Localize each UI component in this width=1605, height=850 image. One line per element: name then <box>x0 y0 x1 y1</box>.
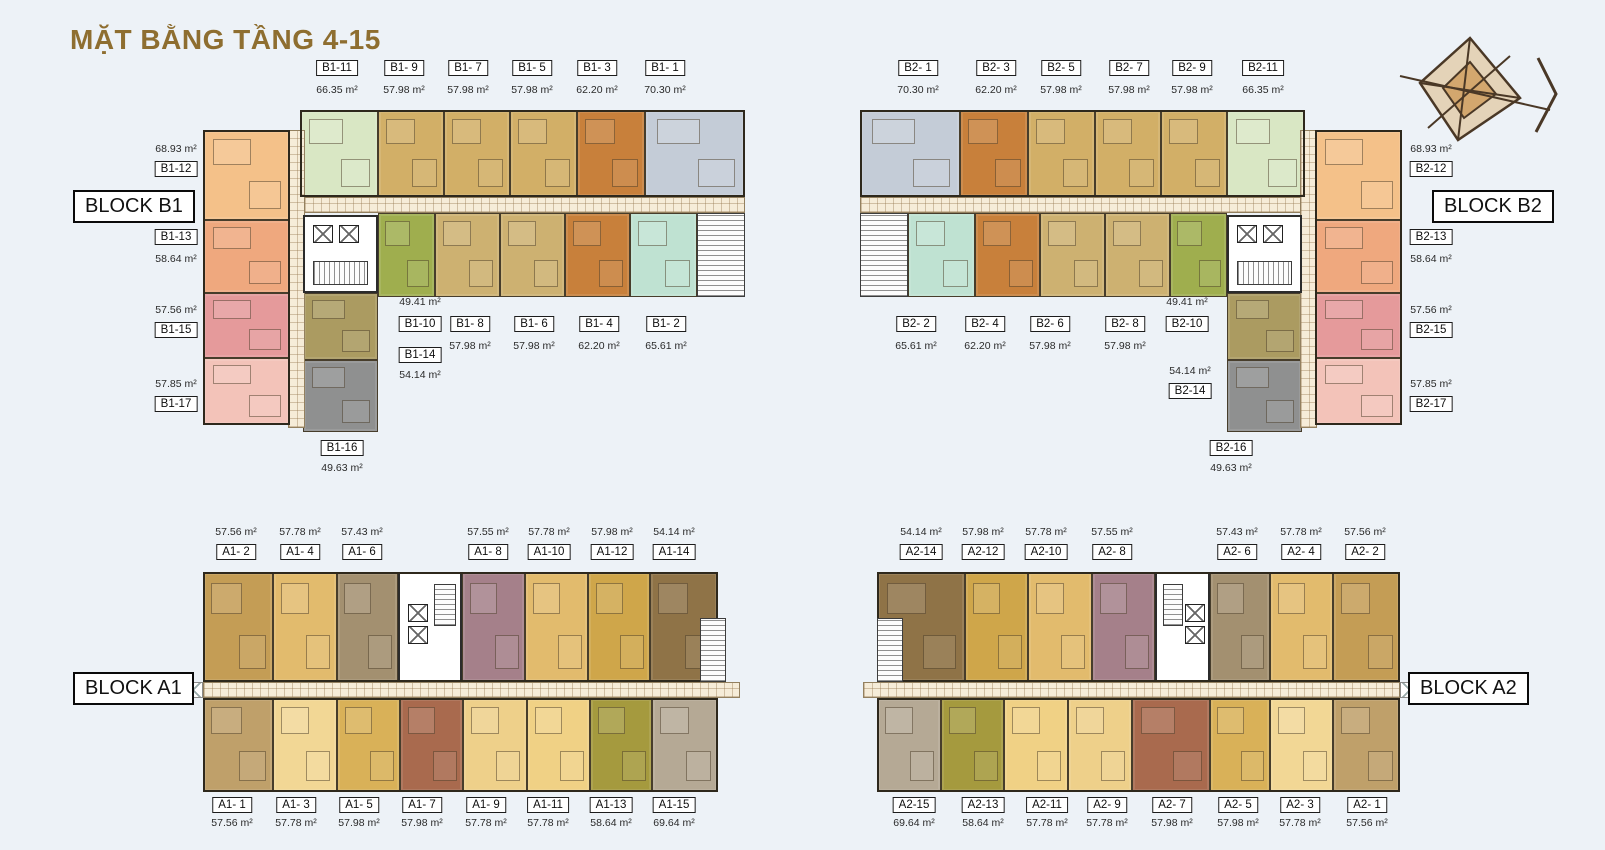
unit-plan-A2-10[interactable] <box>1028 572 1092 682</box>
unit-area-B1-9: 57.98 m² <box>383 84 424 96</box>
unit-label-B2-14[interactable]: B2-14 <box>1169 383 1212 399</box>
unit-area-A1-8: 57.55 m² <box>467 526 508 538</box>
unit-plan-A2-4[interactable] <box>1270 572 1333 682</box>
unit-label-A2-7[interactable]: A2- 7 <box>1152 797 1192 813</box>
elevator-core-a2 <box>1155 572 1210 682</box>
elevator-icon <box>1263 225 1283 243</box>
unit-label-A2-8[interactable]: A2- 8 <box>1092 544 1132 560</box>
elevator-icon <box>1237 225 1257 243</box>
stairwell-a1-east <box>700 618 726 682</box>
unit-plan-B1-17[interactable] <box>203 358 290 425</box>
unit-label-A1-13[interactable]: A1-13 <box>590 797 633 813</box>
unit-label-B1-15[interactable]: B1-15 <box>155 322 198 338</box>
stairs-icon <box>434 584 456 626</box>
unit-area-B1-15: 57.56 m² <box>155 304 196 316</box>
unit-area-A1-11: 57.78 m² <box>527 817 568 829</box>
unit-label-A2-1[interactable]: A2- 1 <box>1347 797 1387 813</box>
unit-area-A2-9: 57.78 m² <box>1086 817 1127 829</box>
unit-area-B1-10: 49.41 m² <box>399 296 440 308</box>
unit-area-B2-1: 70.30 m² <box>897 84 938 96</box>
unit-plan-B2-13[interactable] <box>1315 220 1402 293</box>
unit-plan-A2-12[interactable] <box>965 572 1028 682</box>
unit-area-B2-16: 49.63 m² <box>1210 462 1251 474</box>
unit-label-B1-1[interactable]: B1- 1 <box>645 60 685 76</box>
unit-area-B1-2: 65.61 m² <box>645 340 686 352</box>
unit-plan-B2-12[interactable] <box>1315 130 1402 220</box>
floor-plan-canvas: MẶT BẰNG TẦNG 4-15 BLOCK B1 BLOCK B2 BLO… <box>0 0 1605 850</box>
unit-plan-B1-1[interactable] <box>645 110 745 197</box>
unit-label-A2-2[interactable]: A2- 2 <box>1345 544 1385 560</box>
unit-area-B1-12: 68.93 m² <box>155 143 196 155</box>
unit-area-B2-8: 57.98 m² <box>1104 340 1145 352</box>
unit-label-A1-1[interactable]: A1- 1 <box>212 797 252 813</box>
unit-label-A1-7[interactable]: A1- 7 <box>402 797 442 813</box>
unit-area-B2-15: 57.56 m² <box>1410 304 1451 316</box>
unit-label-B2-10[interactable]: B2-10 <box>1166 316 1209 332</box>
unit-plan-B1-16[interactable] <box>303 360 378 432</box>
unit-plan-A2-13[interactable] <box>941 698 1004 792</box>
unit-plan-B1-2[interactable] <box>630 213 697 297</box>
unit-plan-A2-1[interactable] <box>1333 698 1400 792</box>
unit-area-B2-17: 57.85 m² <box>1410 378 1451 390</box>
unit-label-B2-1[interactable]: B2- 1 <box>898 60 938 76</box>
unit-label-A1-3[interactable]: A1- 3 <box>276 797 316 813</box>
block-label-a2: BLOCK A2 <box>1408 672 1529 705</box>
unit-plan-B1-6[interactable] <box>500 213 565 297</box>
unit-area-B1-13: 58.64 m² <box>155 253 196 265</box>
unit-label-B2-7[interactable]: B2- 7 <box>1109 60 1149 76</box>
unit-plan-B1-10[interactable] <box>378 213 435 297</box>
unit-label-A1-6[interactable]: A1- 6 <box>342 544 382 560</box>
unit-label-B2-6[interactable]: B2- 6 <box>1030 316 1070 332</box>
unit-plan-B1-9[interactable] <box>378 110 444 197</box>
unit-label-B2-15[interactable]: B2-15 <box>1410 322 1453 338</box>
unit-label-A2-4[interactable]: A2- 4 <box>1281 544 1321 560</box>
unit-area-B2-11: 66.35 m² <box>1242 84 1283 96</box>
unit-area-A2-5: 57.98 m² <box>1217 817 1258 829</box>
unit-area-B1-11: 66.35 m² <box>316 84 357 96</box>
unit-plan-B2-3[interactable] <box>960 110 1028 197</box>
unit-area-B2-12: 68.93 m² <box>1410 143 1451 155</box>
corridor-b2-horizontal <box>860 197 1317 213</box>
unit-label-B1-6[interactable]: B1- 6 <box>514 316 554 332</box>
unit-area-A2-6: 57.43 m² <box>1216 526 1257 538</box>
unit-plan-B2-11[interactable] <box>1227 110 1305 197</box>
unit-plan-B1-15[interactable] <box>203 293 290 358</box>
unit-area-A2-13: 58.64 m² <box>962 817 1003 829</box>
unit-plan-A1-6[interactable] <box>337 572 398 682</box>
unit-label-A2-10[interactable]: A2-10 <box>1025 544 1068 560</box>
unit-plan-B2-2[interactable] <box>908 213 975 297</box>
unit-area-A2-1: 57.56 m² <box>1346 817 1387 829</box>
unit-plan-B2-5[interactable] <box>1028 110 1095 197</box>
unit-area-B2-4: 62.20 m² <box>964 340 1005 352</box>
elevator-core-b1 <box>303 215 378 293</box>
unit-label-A2-11[interactable]: A2-11 <box>1026 797 1068 813</box>
unit-area-A1-4: 57.78 m² <box>279 526 320 538</box>
stairwell-b2-west <box>860 213 908 297</box>
elevator-icon <box>1185 604 1205 622</box>
stairwell-b1-east <box>697 213 745 297</box>
unit-label-B1-7[interactable]: B1- 7 <box>448 60 488 76</box>
unit-label-B1-5[interactable]: B1- 5 <box>512 60 552 76</box>
unit-label-B1-17[interactable]: B1-17 <box>155 396 198 412</box>
unit-label-B1-4[interactable]: B1- 4 <box>579 316 619 332</box>
unit-plan-A1-10[interactable] <box>525 572 588 682</box>
corridor-b2-vertical <box>1300 130 1317 428</box>
unit-area-B1-8: 57.98 m² <box>449 340 490 352</box>
unit-plan-B1-11[interactable] <box>300 110 378 197</box>
unit-plan-A1-13[interactable] <box>590 698 652 792</box>
unit-plan-A1-2[interactable] <box>203 572 273 682</box>
unit-plan-B2-16[interactable] <box>1227 360 1302 432</box>
unit-label-B1-8[interactable]: B1- 8 <box>450 316 490 332</box>
unit-plan-A1-9[interactable] <box>463 698 527 792</box>
unit-plan-A1-5[interactable] <box>337 698 400 792</box>
unit-area-A2-11: 57.78 m² <box>1026 817 1067 829</box>
unit-area-B2-9: 57.98 m² <box>1171 84 1212 96</box>
unit-plan-A1-15[interactable] <box>652 698 718 792</box>
unit-label-A1-11[interactable]: A1-11 <box>527 797 569 813</box>
elevator-icon <box>408 626 428 644</box>
unit-plan-B1-12[interactable] <box>203 130 290 220</box>
unit-label-A1-10[interactable]: A1-10 <box>528 544 571 560</box>
unit-label-A1-14[interactable]: A1-14 <box>653 544 696 560</box>
unit-label-B1-13[interactable]: B1-13 <box>155 229 198 245</box>
unit-area-A1-10: 57.78 m² <box>528 526 569 538</box>
unit-label-B2-2[interactable]: B2- 2 <box>896 316 936 332</box>
elevator-icon <box>339 225 359 243</box>
unit-label-B2-11[interactable]: B2-11 <box>1242 60 1284 76</box>
unit-area-A2-7: 57.98 m² <box>1151 817 1192 829</box>
unit-label-B1-10[interactable]: B1-10 <box>399 316 442 332</box>
unit-area-B1-16: 49.63 m² <box>321 462 362 474</box>
unit-label-A2-3[interactable]: A2- 3 <box>1280 797 1320 813</box>
unit-plan-B2-7[interactable] <box>1095 110 1161 197</box>
unit-area-A2-10: 57.78 m² <box>1025 526 1066 538</box>
unit-label-A1-4[interactable]: A1- 4 <box>280 544 320 560</box>
stairs-icon <box>313 261 368 285</box>
unit-plan-B1-5[interactable] <box>510 110 577 197</box>
unit-area-A1-5: 57.98 m² <box>338 817 379 829</box>
unit-plan-B1-3[interactable] <box>577 110 645 197</box>
unit-plan-A2-5[interactable] <box>1210 698 1270 792</box>
unit-plan-B2-9[interactable] <box>1161 110 1227 197</box>
unit-label-B2-16[interactable]: B2-16 <box>1210 440 1253 456</box>
unit-plan-A2-8[interactable] <box>1092 572 1155 682</box>
unit-label-A1-2[interactable]: A1- 2 <box>216 544 256 560</box>
unit-plan-B2-10[interactable] <box>1170 213 1227 297</box>
unit-label-B2-5[interactable]: B2- 5 <box>1041 60 1081 76</box>
unit-plan-A2-7[interactable] <box>1132 698 1210 792</box>
unit-area-A1-15: 69.64 m² <box>653 817 694 829</box>
block-label-b2: BLOCK B2 <box>1432 190 1554 223</box>
unit-label-A2-14[interactable]: A2-14 <box>900 544 943 560</box>
unit-label-B1-16[interactable]: B1-16 <box>321 440 364 456</box>
unit-area-B1-14: 54.14 m² <box>399 369 440 381</box>
unit-plan-A2-11[interactable] <box>1004 698 1068 792</box>
unit-area-B1-17: 57.85 m² <box>155 378 196 390</box>
unit-label-A2-9[interactable]: A2- 9 <box>1087 797 1127 813</box>
unit-plan-A2-9[interactable] <box>1068 698 1132 792</box>
unit-plan-B1-14[interactable] <box>303 293 378 360</box>
unit-plan-A1-12[interactable] <box>588 572 650 682</box>
unit-area-A1-9: 57.78 m² <box>465 817 506 829</box>
corridor-a2-horizontal <box>863 682 1400 698</box>
unit-label-B1-12[interactable]: B1-12 <box>155 161 198 177</box>
unit-area-B2-3: 62.20 m² <box>975 84 1016 96</box>
unit-area-B1-7: 57.98 m² <box>447 84 488 96</box>
unit-label-B2-3[interactable]: B2- 3 <box>976 60 1016 76</box>
unit-plan-B2-4[interactable] <box>975 213 1040 297</box>
unit-area-A1-7: 57.98 m² <box>401 817 442 829</box>
unit-area-A1-6: 57.43 m² <box>341 526 382 538</box>
unit-area-A1-12: 57.98 m² <box>591 526 632 538</box>
unit-label-A2-15[interactable]: A2-15 <box>893 797 936 813</box>
unit-area-A1-13: 58.64 m² <box>590 817 631 829</box>
unit-label-B2-8[interactable]: B2- 8 <box>1105 316 1145 332</box>
unit-plan-B1-7[interactable] <box>444 110 510 197</box>
unit-label-B1-2[interactable]: B1- 2 <box>646 316 686 332</box>
unit-area-A2-15: 69.64 m² <box>893 817 934 829</box>
unit-label-B1-14[interactable]: B1-14 <box>399 347 442 363</box>
unit-area-A1-1: 57.56 m² <box>211 817 252 829</box>
elevator-icon <box>408 604 428 622</box>
unit-plan-B2-17[interactable] <box>1315 358 1402 425</box>
unit-area-B2-10: 49.41 m² <box>1166 296 1207 308</box>
unit-label-B1-9[interactable]: B1- 9 <box>384 60 424 76</box>
unit-plan-A1-3[interactable] <box>273 698 337 792</box>
unit-plan-B2-14[interactable] <box>1227 293 1302 360</box>
page-title: MẶT BẰNG TẦNG 4-15 <box>70 24 381 56</box>
unit-label-A1-8[interactable]: A1- 8 <box>468 544 508 560</box>
stairwell-a2-west <box>877 618 903 682</box>
unit-area-B2-6: 57.98 m² <box>1029 340 1070 352</box>
corridor-a1-horizontal <box>203 682 740 698</box>
unit-plan-A1-4[interactable] <box>273 572 337 682</box>
unit-plan-B1-4[interactable] <box>565 213 630 297</box>
block-label-b1: BLOCK B1 <box>73 190 195 223</box>
unit-area-A1-14: 54.14 m² <box>653 526 694 538</box>
stairs-icon <box>1237 261 1292 285</box>
unit-label-B2-13[interactable]: B2-13 <box>1410 229 1453 245</box>
unit-label-A1-9[interactable]: A1- 9 <box>466 797 506 813</box>
unit-label-B2-12[interactable]: B2-12 <box>1410 161 1453 177</box>
unit-plan-A1-7[interactable] <box>400 698 463 792</box>
unit-label-B1-3[interactable]: B1- 3 <box>577 60 617 76</box>
unit-area-A2-2: 57.56 m² <box>1344 526 1385 538</box>
unit-label-A1-12[interactable]: A1-12 <box>591 544 634 560</box>
unit-plan-A2-15[interactable] <box>877 698 941 792</box>
unit-area-B2-14: 54.14 m² <box>1169 365 1210 377</box>
unit-plan-B2-8[interactable] <box>1105 213 1170 297</box>
unit-label-B2-4[interactable]: B2- 4 <box>965 316 1005 332</box>
corridor-b1-horizontal <box>288 197 745 213</box>
unit-label-A1-15[interactable]: A1-15 <box>653 797 696 813</box>
unit-plan-A2-3[interactable] <box>1270 698 1333 792</box>
unit-area-A2-4: 57.78 m² <box>1280 526 1321 538</box>
unit-area-A2-14: 54.14 m² <box>900 526 941 538</box>
elevator-icon <box>313 225 333 243</box>
unit-area-B1-1: 70.30 m² <box>644 84 685 96</box>
unit-area-B1-3: 62.20 m² <box>576 84 617 96</box>
unit-plan-B1-8[interactable] <box>435 213 500 297</box>
unit-label-B1-11[interactable]: B1-11 <box>316 60 358 76</box>
unit-area-A2-8: 57.55 m² <box>1091 526 1132 538</box>
unit-area-A1-2: 57.56 m² <box>215 526 256 538</box>
elevator-icon <box>1185 626 1205 644</box>
unit-area-B1-5: 57.98 m² <box>511 84 552 96</box>
unit-label-A2-12[interactable]: A2-12 <box>962 544 1005 560</box>
unit-plan-B1-13[interactable] <box>203 220 290 293</box>
unit-area-B2-5: 57.98 m² <box>1040 84 1081 96</box>
unit-label-A2-6[interactable]: A2- 6 <box>1217 544 1257 560</box>
unit-label-A2-5[interactable]: A2- 5 <box>1218 797 1258 813</box>
unit-area-B1-4: 62.20 m² <box>578 340 619 352</box>
stairs-icon <box>1163 584 1183 626</box>
unit-label-A1-5[interactable]: A1- 5 <box>339 797 379 813</box>
unit-plan-A1-1[interactable] <box>203 698 273 792</box>
unit-area-B1-6: 57.98 m² <box>513 340 554 352</box>
block-label-a1: BLOCK A1 <box>73 672 194 705</box>
elevator-core-a1 <box>398 572 462 682</box>
unit-plan-A1-8[interactable] <box>462 572 525 682</box>
unit-label-A2-13[interactable]: A2-13 <box>962 797 1005 813</box>
unit-plan-B2-1[interactable] <box>860 110 960 197</box>
unit-area-A2-12: 57.98 m² <box>962 526 1003 538</box>
unit-label-B2-17[interactable]: B2-17 <box>1410 396 1453 412</box>
unit-area-B2-13: 58.64 m² <box>1410 253 1451 265</box>
unit-area-B2-2: 65.61 m² <box>895 340 936 352</box>
unit-area-B2-7: 57.98 m² <box>1108 84 1149 96</box>
unit-plan-A1-11[interactable] <box>527 698 590 792</box>
unit-area-A1-3: 57.78 m² <box>275 817 316 829</box>
unit-label-B2-9[interactable]: B2- 9 <box>1172 60 1212 76</box>
compass-icon <box>1398 28 1570 146</box>
unit-plan-B2-6[interactable] <box>1040 213 1105 297</box>
elevator-core-b2 <box>1227 215 1302 293</box>
unit-plan-B2-15[interactable] <box>1315 293 1402 358</box>
unit-plan-A2-2[interactable] <box>1333 572 1400 682</box>
unit-plan-A2-6[interactable] <box>1210 572 1270 682</box>
unit-area-A2-3: 57.78 m² <box>1279 817 1320 829</box>
